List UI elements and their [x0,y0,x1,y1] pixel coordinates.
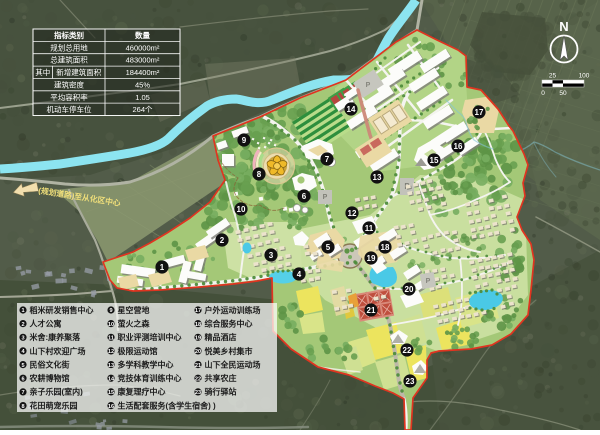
svg-text:184400m²: 184400m² [126,68,160,77]
svg-text:人才公寓: 人才公寓 [30,318,62,328]
svg-text:20: 20 [195,349,201,355]
svg-text:亲子乐园(室内): 亲子乐园(室内) [30,387,84,397]
svg-text:山下村欢迎广场: 山下村欢迎广场 [30,346,86,356]
svg-text:19: 19 [195,336,201,342]
svg-text:8: 8 [257,170,262,179]
svg-text:共享农庄: 共享农庄 [205,373,237,383]
svg-text:23: 23 [195,390,201,396]
svg-text:骑行驿站: 骑行驿站 [205,387,237,397]
svg-text:机动车停车位: 机动车停车位 [47,104,92,114]
svg-text:P: P [323,194,328,201]
svg-text:民俗文化街: 民俗文化街 [30,359,70,369]
svg-text:5: 5 [326,243,331,252]
svg-text:康复理疗中心: 康复理疗中心 [118,387,166,397]
svg-text:13: 13 [108,363,114,369]
svg-text:100: 100 [579,73,590,80]
svg-text:483000m²: 483000m² [126,56,160,65]
svg-text:N: N [559,19,568,34]
svg-text:职业评测培训中心: 职业评测培训中心 [118,332,182,342]
svg-text:50: 50 [559,90,567,97]
svg-text:17: 17 [475,108,484,117]
svg-text:花田萌宠乐园: 花田萌宠乐园 [30,400,78,410]
svg-text:生活配套服务(含学生宿舍) ): 生活配套服务(含学生宿舍) ) [118,400,217,410]
svg-text:20: 20 [405,285,414,294]
svg-text:460000m²: 460000m² [126,43,160,52]
svg-text:15: 15 [430,156,439,165]
svg-text:1.05: 1.05 [135,93,150,102]
svg-text:米舍:康养聚落: 米舍:康养聚落 [29,332,82,342]
svg-text:22: 22 [403,346,412,355]
svg-text:16: 16 [454,142,463,151]
svg-text:18: 18 [381,243,390,252]
svg-text:6: 6 [302,192,307,201]
svg-text:P: P [426,278,431,285]
svg-text:15: 15 [108,390,114,396]
svg-text:极限运动馆: 极限运动馆 [118,346,158,356]
svg-text:12: 12 [108,349,114,355]
svg-text:建筑密度: 建筑密度 [54,79,84,89]
svg-text:1: 1 [21,308,24,314]
svg-text:11: 11 [365,224,374,233]
svg-text:10: 10 [108,322,114,328]
svg-text:5: 5 [21,363,24,369]
svg-text:9: 9 [242,136,247,145]
svg-text:264个: 264个 [132,105,153,114]
svg-text:悦美乡村集市: 悦美乡村集市 [205,346,253,356]
svg-text:新增建筑面积: 新增建筑面积 [56,67,101,77]
svg-text:星空营地: 星空营地 [118,305,150,315]
svg-text:2: 2 [21,322,24,328]
svg-text:10: 10 [237,205,246,214]
svg-text:7: 7 [21,390,24,396]
svg-text:13: 13 [373,173,382,182]
svg-text:23: 23 [406,377,415,386]
svg-text:稻米研发销售中心: 稻米研发销售中心 [30,305,94,315]
svg-text:21: 21 [367,306,376,315]
svg-text:综合服务中心: 综合服务中心 [205,318,253,328]
svg-text:7: 7 [325,155,330,164]
svg-text:农耕博物馆: 农耕博物馆 [29,373,70,383]
svg-text:萤火之森: 萤火之森 [118,318,151,328]
svg-text:9: 9 [109,308,112,314]
svg-text:12: 12 [348,209,357,218]
svg-text:19: 19 [367,254,376,263]
svg-text:22: 22 [195,376,201,382]
svg-text:竞技体育训练中心: 竞技体育训练中心 [117,373,182,383]
svg-text:14: 14 [108,376,115,382]
svg-text:11: 11 [108,336,114,342]
svg-text:P: P [366,82,371,89]
svg-text:2: 2 [220,236,225,245]
svg-text:山下全民运动场: 山下全民运动场 [205,359,261,369]
svg-text:25: 25 [549,73,557,80]
svg-text:精品酒店: 精品酒店 [205,332,237,342]
svg-text:17: 17 [195,308,201,314]
svg-text:0: 0 [541,90,545,97]
svg-text:数量: 数量 [135,30,150,40]
svg-text:18: 18 [195,322,201,328]
svg-text:1: 1 [160,263,165,272]
svg-text:户外运动训练场: 户外运动训练场 [205,305,261,315]
svg-text:总建筑面积: 总建筑面积 [50,55,88,65]
svg-text:3: 3 [21,336,24,342]
svg-text:4: 4 [297,270,302,279]
svg-text:其中: 其中 [35,67,50,77]
svg-text:6: 6 [21,376,24,382]
svg-text:规划总用地: 规划总用地 [50,42,88,52]
svg-text:平均容积率: 平均容积率 [50,92,88,102]
svg-text:多学科教学中心: 多学科教学中心 [118,359,174,369]
svg-text:21: 21 [195,363,201,369]
svg-text:45%: 45% [135,80,150,89]
svg-text:16: 16 [108,404,114,410]
svg-text:14: 14 [347,105,356,114]
svg-text:指标类别: 指标类别 [54,30,84,40]
svg-text:8: 8 [21,404,24,410]
svg-text:3: 3 [269,251,274,260]
